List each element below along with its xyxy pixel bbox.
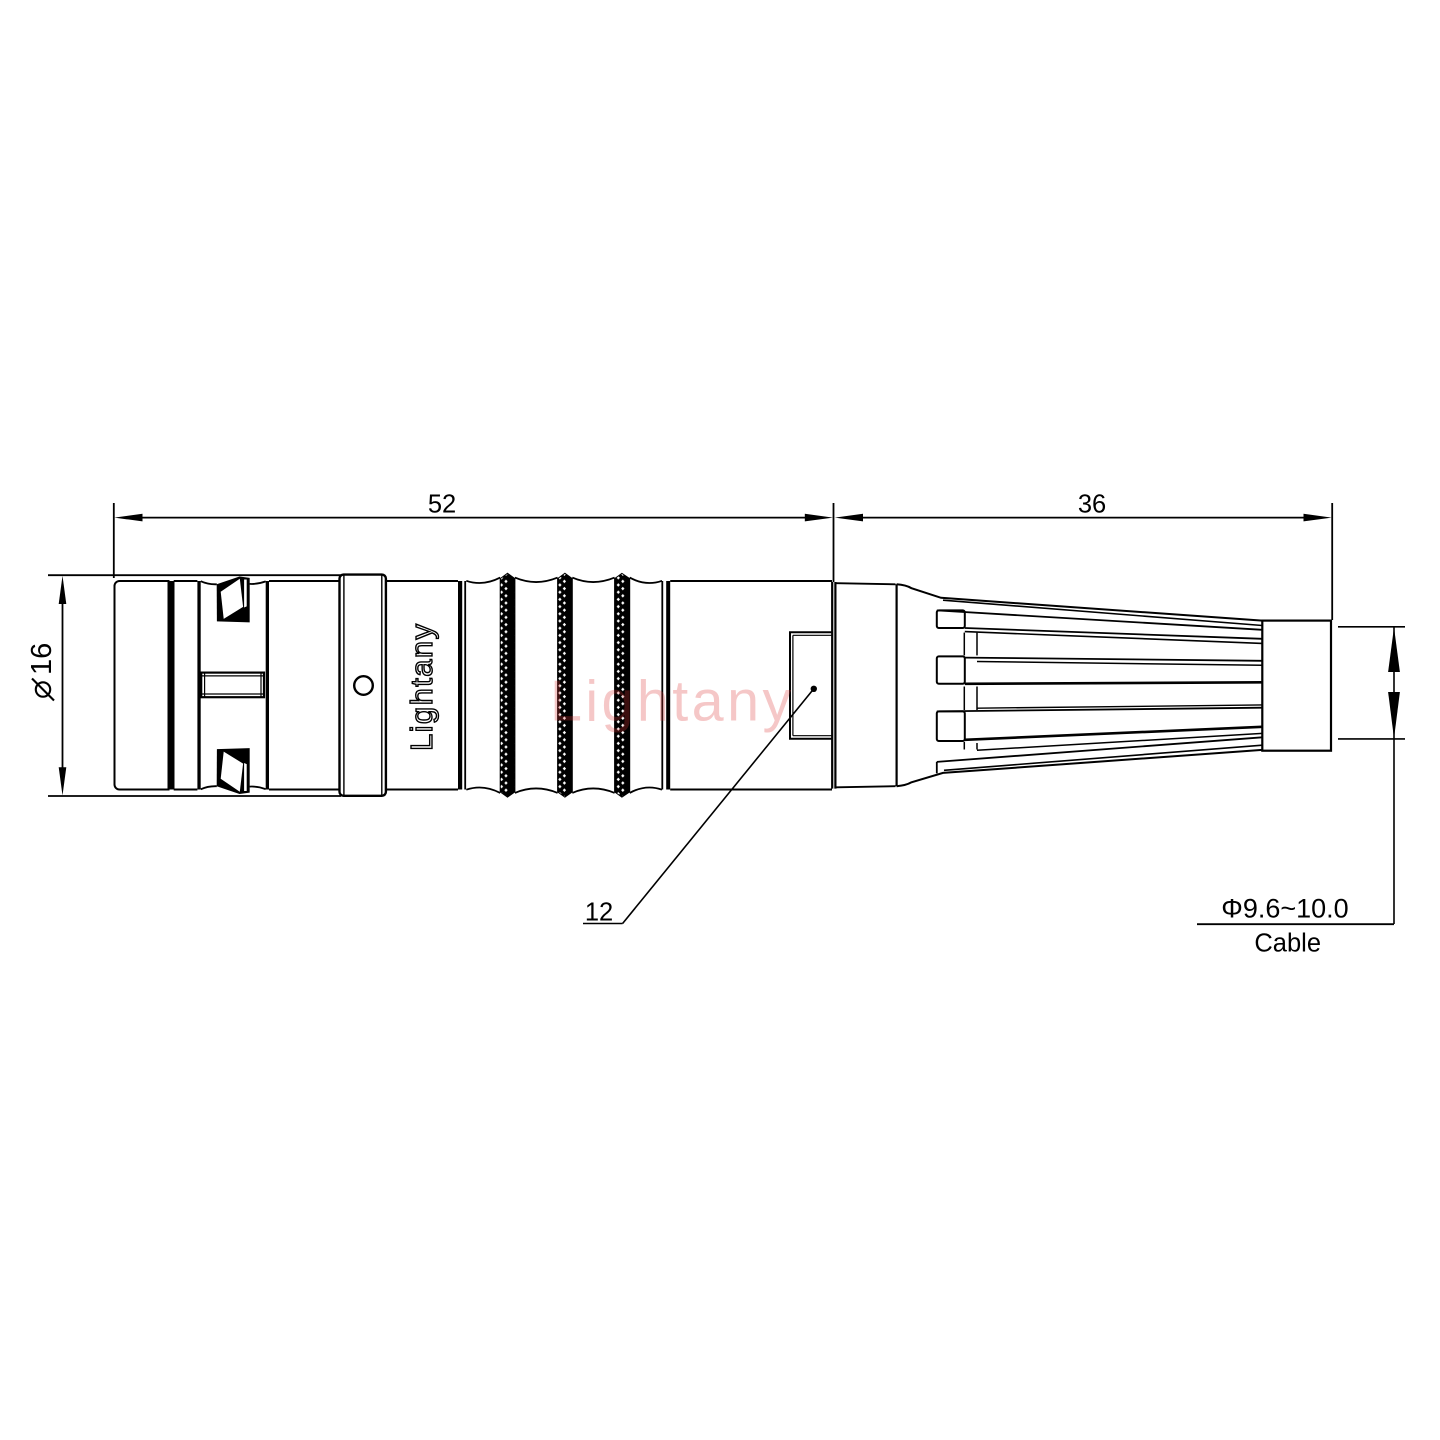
svg-text:36: 36 [1078,490,1106,518]
svg-text:Cable: Cable [1254,930,1321,958]
svg-text:Lightany: Lightany [404,623,439,751]
svg-text:16: 16 [26,643,58,675]
svg-text:Lightany: Lightany [550,670,795,734]
svg-text:52: 52 [428,490,456,518]
svg-text:12: 12 [585,899,613,927]
svg-text:Φ9.6~10.0: Φ9.6~10.0 [1221,894,1348,924]
